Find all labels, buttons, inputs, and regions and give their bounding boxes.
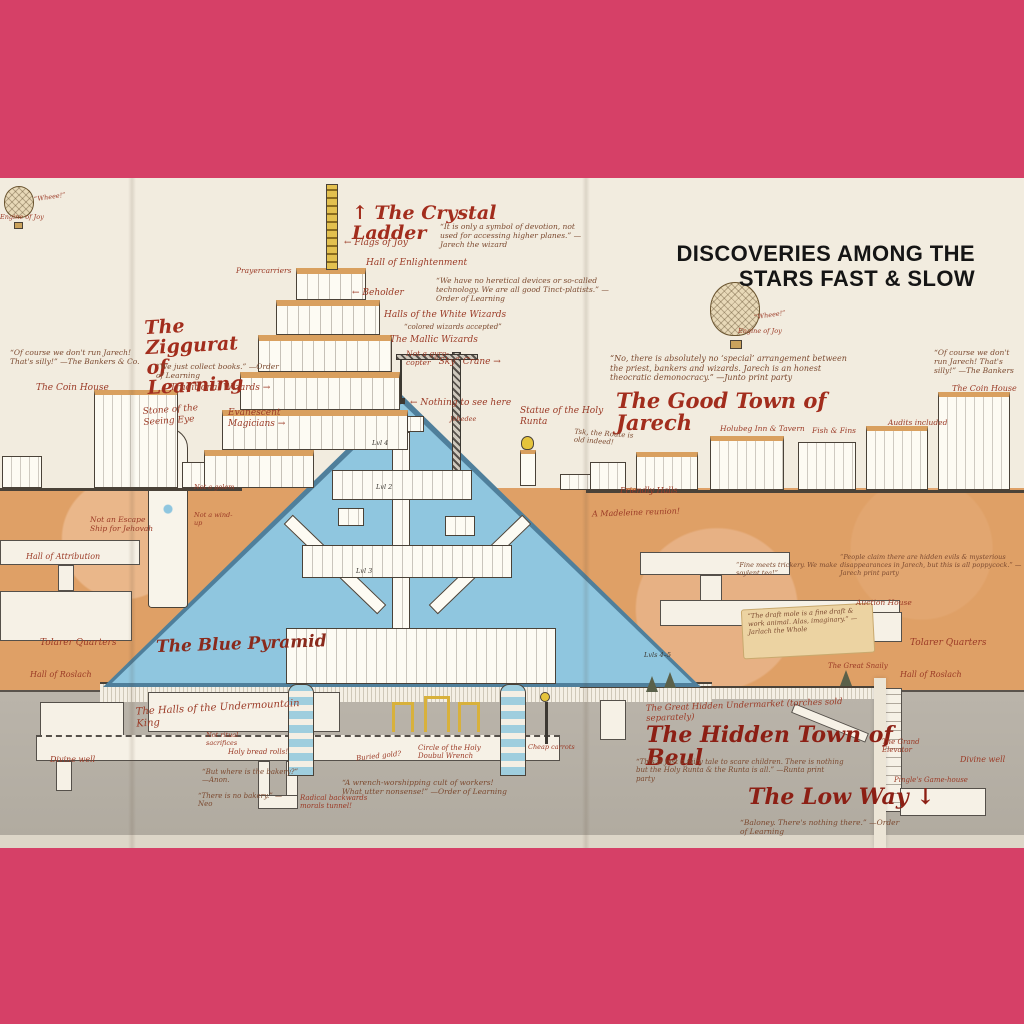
label-morals-tunnel: Radical backwards morals tunnel!: [300, 794, 390, 811]
label-not-windup: Not a wind-up: [194, 512, 236, 528]
balloon-basket: [14, 222, 23, 229]
label-mallic-wizards: The Mallic Wizards: [390, 335, 478, 346]
coin-house-right-building: [938, 392, 1010, 490]
runta-statue-pedestal: [520, 450, 536, 486]
label-hall-roslach-right: Hall of Roslach: [900, 670, 962, 680]
label-lvl4: Lvl 4: [372, 440, 388, 448]
runta-statue-figure: [521, 436, 534, 450]
label-white-wizards-note: “colored wizards accepted”: [404, 323, 564, 331]
label-traditional-wizards: Traditional Wizards →: [170, 383, 270, 394]
quote-bakery-answer: “There is no bakery.” —Neo: [198, 792, 296, 809]
label-ritual-sacrifices: Not ritual sacrifices: [206, 732, 270, 748]
label-lvls45: Lvls 4–5: [644, 652, 671, 660]
label-engine-right: Engine of Joy: [738, 328, 800, 336]
lamp-post-icon: [545, 702, 548, 744]
trilithon-icon: [392, 702, 414, 732]
label-evanescent: Evanescent Magicians →: [228, 408, 320, 430]
book-spread: { "header": { "title": "DISCOVERIES AMON…: [0, 0, 1024, 1024]
label-friendly-halls: Friendly Halls: [620, 486, 678, 496]
label-beholder: ← Beholder: [352, 288, 404, 299]
label-coin-house-right: The Coin House: [952, 384, 1017, 394]
label-escape-ship: Not an Escape Ship for Jehovah: [90, 515, 154, 533]
label-nothing-to-see: ← Nothing to see here: [410, 398, 511, 409]
label-flags-of-joy: ← Flags of Joy: [344, 238, 408, 249]
page-title: DISCOVERIES AMONG THE STARS FAST & SLOW: [665, 242, 975, 291]
quote-bankers-left: “Of course we don't run Jarech! That's s…: [10, 348, 140, 366]
label-lvl2: Lvl 2: [376, 484, 392, 492]
trilithon-icon: [458, 702, 480, 732]
building: [866, 426, 928, 490]
balloon-basket: [730, 340, 742, 349]
fold-crease: [582, 178, 590, 848]
holubeg-inn-building: [710, 436, 784, 490]
quote-bakery-question: “But where is the bakery?” —Anon.: [202, 768, 300, 785]
pyramid-gallery-mid: [302, 545, 512, 578]
trilithon-icon: [424, 696, 450, 732]
label-engine-left: Engine of Joy: [0, 214, 60, 222]
label-grand-elevator: The Grand Elevator: [882, 738, 940, 755]
label-audits-included: Audits included: [888, 418, 947, 427]
label-whee-left: “Wheee!”: [34, 192, 67, 204]
label-prayercarriers: Prayercarriers: [236, 266, 306, 275]
label-holubeg-inn: Holubeg Inn & Tavern: [720, 424, 805, 433]
label-white-wizards: Halls of the White Wizards: [384, 310, 594, 321]
label-not-golem: Not a golem: [194, 484, 236, 492]
fish-and-fins-building: [798, 442, 856, 490]
quote-wrench: “A wrench-worshipping cult of workers! W…: [342, 778, 510, 796]
crystal-ladder-mast: [326, 184, 338, 270]
label-great-snaily: The Great Snaily: [828, 662, 888, 670]
label-lvl3: Lvl 3: [356, 568, 372, 576]
quote-soylent: “Fine meets trickery. We make soylent te…: [736, 562, 838, 578]
laborer-rooms-left: [0, 591, 132, 641]
label-statue-runta: Statue of the Holy Runta: [520, 406, 604, 428]
label-stone-eye: Stone of the Seeing Eye: [142, 401, 229, 429]
label-cheap-carrots: Cheap carrots: [528, 744, 576, 752]
label-holy-bread: Holy bread rolls!: [228, 748, 294, 756]
building: [636, 452, 698, 490]
label-hall-enlightenment: Hall of Enlightenment: [366, 258, 467, 269]
label-circle-wrench: Circle of the Holy Doubul Wrench: [418, 744, 498, 761]
label-divine-well-left: Divine well: [50, 755, 95, 765]
building: [2, 456, 42, 488]
label-auction-house: Auction House: [856, 598, 912, 607]
label-low-way: The Low Way ↓: [748, 786, 948, 809]
label-pingles: Pingle's Game-house: [894, 776, 994, 784]
pyramid-gallery-upper: [332, 470, 472, 500]
quote-symbol: “It is only a symbol of devotion, not us…: [440, 222, 590, 249]
fold-crease: [128, 178, 136, 848]
tunnel-shaft: [58, 565, 74, 591]
label-hall-attribution-left: Hall of Attribution: [26, 552, 100, 562]
quote-bankers-right: “Of course we don't run Jarech! That's s…: [934, 348, 1022, 375]
label-divine-well-right: Divine well: [960, 755, 1012, 765]
label-sky-crane: “Sky” Crane →: [434, 357, 501, 368]
label-quarters-right: Tolarer Quarters: [910, 638, 986, 649]
divine-well-shaft: [56, 761, 72, 791]
pyramid-chamber-b: [445, 516, 475, 536]
tree-icon: [664, 672, 676, 688]
label-coin-house-left: The Coin House: [36, 383, 109, 394]
label-jebedee: Jebedee: [450, 416, 476, 424]
pyramid-chamber-a: [338, 508, 364, 526]
label-hall-roslach-left: Hall of Roslach: [30, 670, 92, 680]
quote-arrangement: “No, there is absolutely no ‘special’ ar…: [610, 354, 858, 383]
quote-fairy-tale: “This is just a fairy tale to scare chil…: [636, 758, 844, 783]
label-whee-right: “Wheee!”: [754, 310, 787, 322]
guardian-pillar-right: [500, 684, 526, 776]
map-page: DISCOVERIES AMONG THE STARS FAST & SLOW …: [0, 178, 1024, 848]
label-quarters-left: Tolarer Quarters: [40, 638, 116, 649]
page-bottom-edge: [0, 835, 1024, 848]
lamp-bulb-icon: [540, 692, 550, 702]
beul-entrance-shaft: [600, 700, 626, 740]
quote-collect-books: “We just collect books.” —Order of Learn…: [156, 362, 284, 380]
label-fish-fins: Fish & Fins: [812, 426, 856, 435]
ziggurat-tier-2: [276, 300, 380, 335]
quote-poppycock: “People claim there are hidden evils & m…: [840, 554, 1022, 577]
tree-icon: [840, 670, 852, 686]
tree-icon: [646, 676, 658, 692]
quote-baloney: “Baloney. There's nothing there.” —Order…: [740, 818, 902, 836]
sky-crane-cable: [400, 360, 402, 398]
